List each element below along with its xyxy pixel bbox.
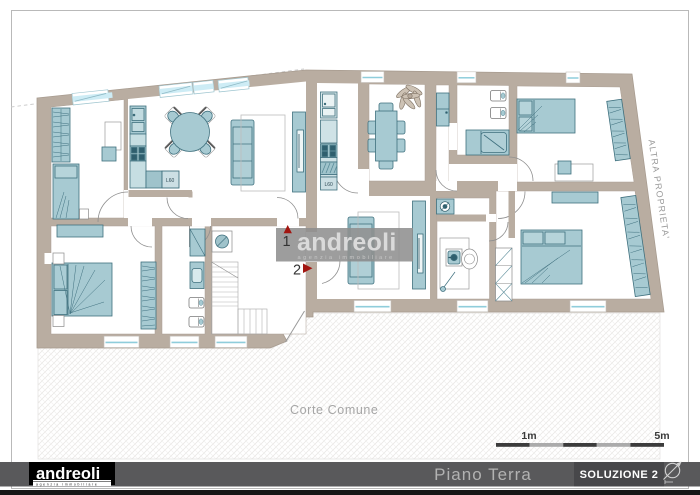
svg-text:5m: 5m: [654, 430, 669, 442]
svg-text:Corte Comune: Corte Comune: [290, 403, 379, 417]
svg-text:L60: L60: [166, 178, 175, 184]
svg-text:1m: 1m: [521, 430, 536, 442]
svg-text:1: 1: [283, 234, 291, 250]
svg-text:L60: L60: [325, 182, 334, 188]
svg-text:andreoli: andreoli: [297, 229, 397, 257]
svg-text:Piano Terra: Piano Terra: [434, 465, 532, 484]
svg-text:2: 2: [293, 263, 301, 279]
svg-text:agenzia immobiliare: agenzia immobiliare: [298, 255, 395, 261]
svg-text:agenzia immobiliare: agenzia immobiliare: [36, 482, 98, 486]
svg-text:SOLUZIONE 2: SOLUZIONE 2: [580, 469, 659, 481]
